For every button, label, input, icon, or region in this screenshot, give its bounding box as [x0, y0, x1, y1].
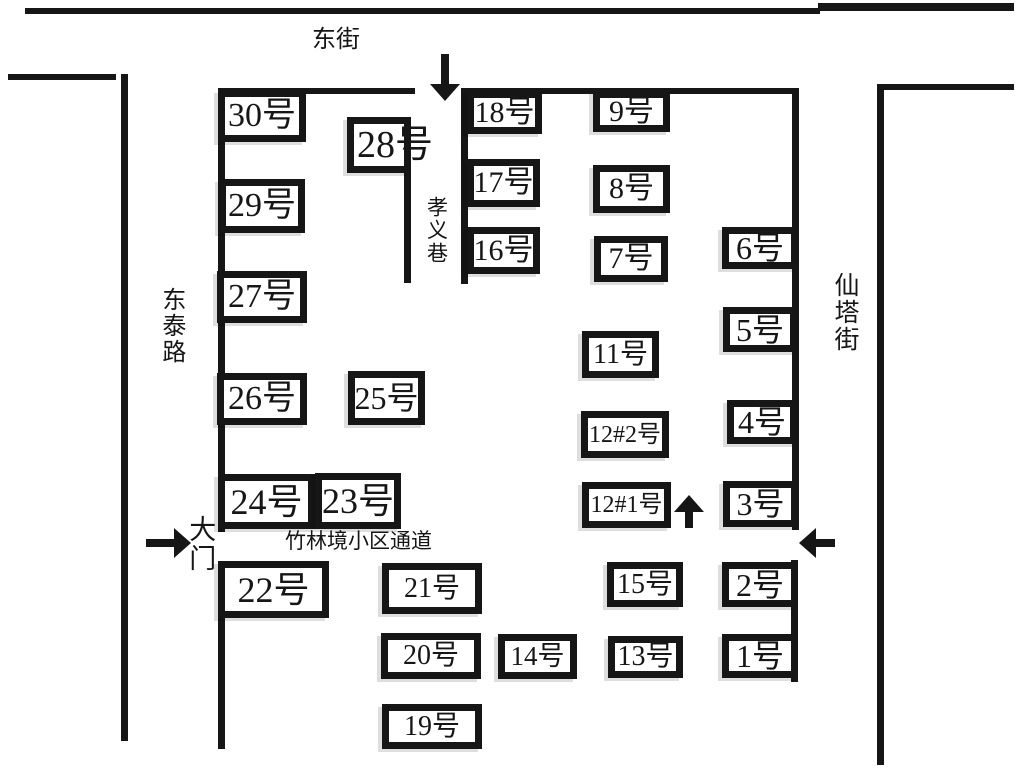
building-19: 19号 [382, 704, 482, 749]
building-23: 23号 [315, 473, 401, 529]
building-24: 24号 [218, 474, 315, 529]
label-xian-ta-jie-street: 仙塔街 [830, 272, 858, 353]
building-18: 18号 [467, 91, 542, 134]
building-13: 13号 [608, 636, 683, 678]
building-8: 8号 [593, 165, 670, 213]
building-30: 30号 [218, 90, 306, 142]
building-12-1: 12#1号 [582, 482, 671, 528]
east-entrance-arrow-head [799, 528, 816, 558]
wall-xiaoyi-lane-west-wall [404, 170, 411, 283]
building-26: 26号 [217, 373, 307, 425]
building-21: 21号 [382, 563, 482, 614]
building-16: 16号 [467, 227, 540, 274]
building-11: 11号 [582, 331, 659, 378]
building-2: 2号 [722, 562, 798, 607]
building-14: 14号 [498, 634, 577, 679]
wall-north-street-edge-1 [25, 8, 820, 14]
north-entrance-arrow-stem [441, 54, 449, 84]
building-22: 22号 [218, 561, 329, 618]
label-passage: 竹林境小区通道 [285, 530, 432, 554]
building-3: 3号 [723, 481, 798, 527]
wall-west-street-corner [8, 74, 116, 80]
building-15: 15号 [607, 562, 683, 607]
building-28: 28号 [347, 117, 411, 173]
east-entrance-arrow-stem [816, 539, 835, 547]
building-6: 6号 [722, 227, 798, 269]
interior-up-arrow-stem [685, 512, 693, 528]
building-9: 9号 [593, 91, 670, 132]
building-5: 5号 [723, 307, 797, 352]
building-7: 7号 [594, 236, 668, 282]
wall-east-street-corner [877, 84, 1014, 90]
building-17: 17号 [467, 159, 540, 207]
east-entrance-arrow [799, 528, 835, 558]
community-map: 30号29号27号26号24号23号22号28号25号21号20号19号18号1… [0, 0, 1024, 768]
wall-west-street-edge [121, 74, 128, 741]
building-25: 25号 [348, 371, 425, 425]
interior-up-arrow-head [674, 495, 704, 512]
label-dong-jie-street: 东街 [312, 27, 360, 54]
label-dong-tai-lu-road: 东泰路 [157, 287, 184, 365]
north-entrance-arrow-head [430, 84, 460, 101]
building-12-2: 12#2号 [581, 411, 669, 458]
building-4: 4号 [727, 400, 797, 444]
interior-up-arrow [674, 495, 704, 528]
north-entrance-arrow [430, 54, 460, 101]
building-27: 27号 [217, 271, 307, 323]
main-gate-arrow [146, 528, 191, 558]
building-29: 29号 [219, 179, 305, 233]
main-gate-arrow-stem [146, 539, 174, 547]
wall-north-street-edge-2 [818, 3, 1014, 11]
wall-east-street-edge [877, 84, 884, 765]
label-xiao-yi-xiang-lane: 孝义巷 [424, 196, 448, 265]
main-gate-arrow-head [174, 528, 191, 558]
building-1: 1号 [722, 634, 798, 678]
building-20: 20号 [381, 633, 481, 679]
